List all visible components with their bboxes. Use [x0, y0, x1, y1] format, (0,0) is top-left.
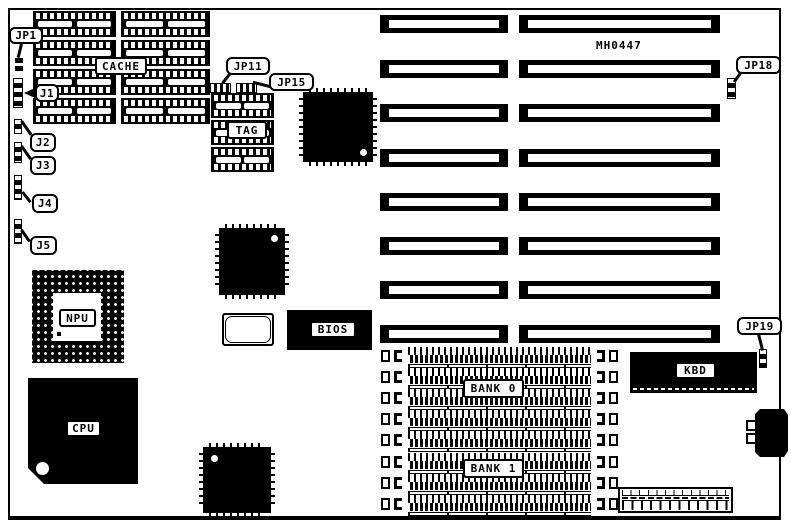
- qfp-chip-chipset: [303, 92, 373, 162]
- cache-dip-chip: [121, 11, 210, 37]
- pin1-marker: [36, 462, 49, 475]
- pin1-marker: [211, 455, 218, 462]
- simm-socket: [381, 347, 618, 368]
- expansion-slot: [519, 325, 720, 343]
- expansion-slot: [519, 281, 720, 299]
- qfp-chip-2: [219, 228, 285, 295]
- chip-pins: [225, 224, 279, 228]
- jumper-label-jp15: JP15: [269, 73, 314, 91]
- chip-pins: [309, 88, 367, 92]
- jumper-block-j4: [14, 175, 22, 200]
- simm-socket: [381, 431, 618, 452]
- expansion-slot: [519, 193, 720, 211]
- jumper-label-jp19: JP19: [737, 317, 782, 335]
- chip-pins: [209, 513, 265, 517]
- expansion-slot: [519, 149, 720, 167]
- jumper-label-j5: J5: [30, 236, 57, 255]
- crystal-oscillator: [222, 313, 274, 346]
- pin1-marker: [360, 149, 367, 156]
- qfp-chip-3: [203, 447, 271, 513]
- part-number: MH0447: [596, 39, 642, 52]
- connector-plug: [746, 420, 757, 431]
- jumper-label-j3: J3: [30, 156, 56, 175]
- jumper-block-jp1: [15, 58, 23, 72]
- chip-pins: [633, 388, 754, 390]
- expansion-slot: [380, 237, 508, 255]
- jumper-block-jp15: [236, 83, 257, 93]
- chip-pins: [225, 295, 279, 299]
- jumper-label-jp18: JP18: [736, 56, 781, 74]
- motherboard-diagram: MH0447 CACHE TAG NPU CPU BIOS BANK 0 BAN…: [0, 0, 791, 527]
- chip-pins: [209, 443, 265, 447]
- expansion-slot: [380, 281, 508, 299]
- chip-pins: [285, 234, 289, 289]
- jumper-block-jp19: [759, 349, 767, 368]
- expansion-slot: [380, 193, 508, 211]
- chip-pins: [373, 98, 377, 156]
- cache-dip-chip: [121, 98, 210, 124]
- jumper-label-j4: J4: [32, 194, 58, 213]
- jumper-label-jp1: JP1: [9, 27, 43, 44]
- connector-pins: [622, 490, 729, 496]
- cache-label: CACHE: [95, 57, 147, 75]
- kbd-label: KBD: [675, 362, 716, 379]
- cpu-label: CPU: [66, 420, 101, 437]
- bank0-label: BANK 0: [463, 379, 524, 398]
- connector-pins: [622, 497, 729, 499]
- expansion-slot: [519, 60, 720, 78]
- connector-plug: [746, 433, 757, 444]
- jumper-label-jp11: JP11: [226, 57, 270, 75]
- expansion-slot: [380, 60, 508, 78]
- chip-pins: [271, 453, 275, 507]
- bank1-label: BANK 1: [463, 459, 524, 478]
- jumper-label-j1: J1: [35, 84, 59, 102]
- leader-arrow-j1: [24, 88, 35, 98]
- power-connector: [618, 487, 733, 513]
- bios-label: BIOS: [310, 321, 356, 338]
- chip-pins: [309, 162, 367, 166]
- simm-socket: [381, 495, 618, 516]
- expansion-slot: [380, 149, 508, 167]
- pin1-marker: [57, 332, 61, 336]
- chip-pins: [299, 98, 303, 156]
- memory-bank-simm-sockets: [381, 347, 618, 516]
- expansion-slot: [519, 15, 720, 33]
- expansion-slot: [380, 15, 508, 33]
- chip-pins: [215, 234, 219, 289]
- pin1-marker: [271, 235, 278, 242]
- npu-label: NPU: [59, 309, 96, 327]
- jumper-label-j2: J2: [30, 133, 56, 152]
- tag-dip-chip: [211, 93, 274, 118]
- tag-dip-chip: [211, 147, 274, 172]
- expansion-slot: [380, 325, 508, 343]
- cache-dip-chip: [33, 11, 116, 37]
- expansion-slot: [519, 104, 720, 122]
- jumper-block-j1: [13, 78, 23, 108]
- crystal-inner-outline: [225, 316, 271, 343]
- jumper-block-jp11: [210, 83, 231, 93]
- tag-label: TAG: [227, 121, 267, 139]
- din-keyboard-connector: [755, 409, 788, 457]
- expansion-slot: [519, 237, 720, 255]
- connector-pins: [622, 500, 729, 510]
- expansion-slot: [380, 104, 508, 122]
- chip-pins: [199, 453, 203, 507]
- simm-socket: [381, 410, 618, 431]
